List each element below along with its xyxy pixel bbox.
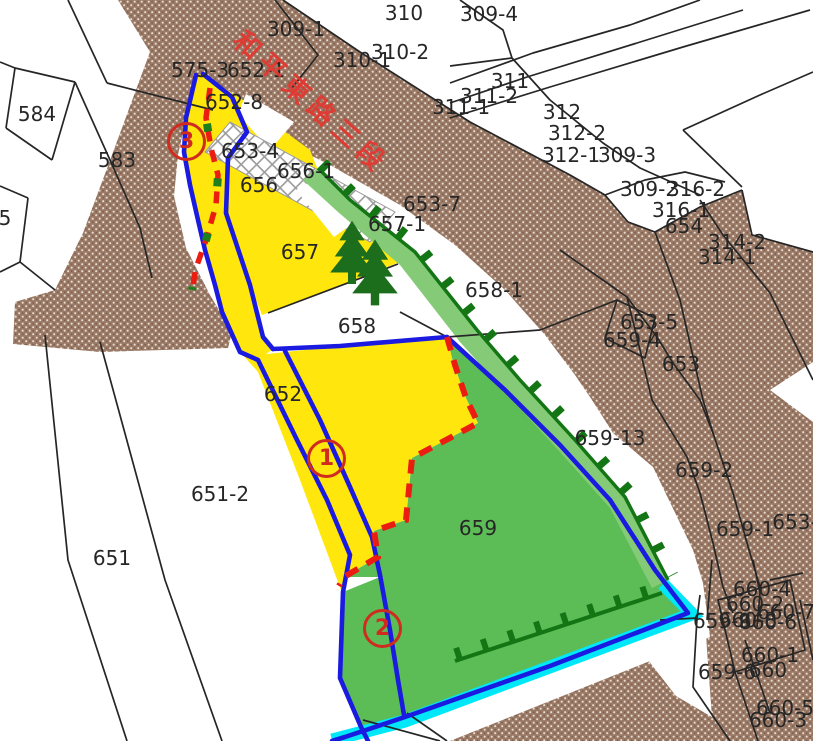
cadastral-map: 310309-4309-1310-2310-1575-3652-1311311-… xyxy=(0,0,813,741)
map-drawing xyxy=(0,0,813,741)
